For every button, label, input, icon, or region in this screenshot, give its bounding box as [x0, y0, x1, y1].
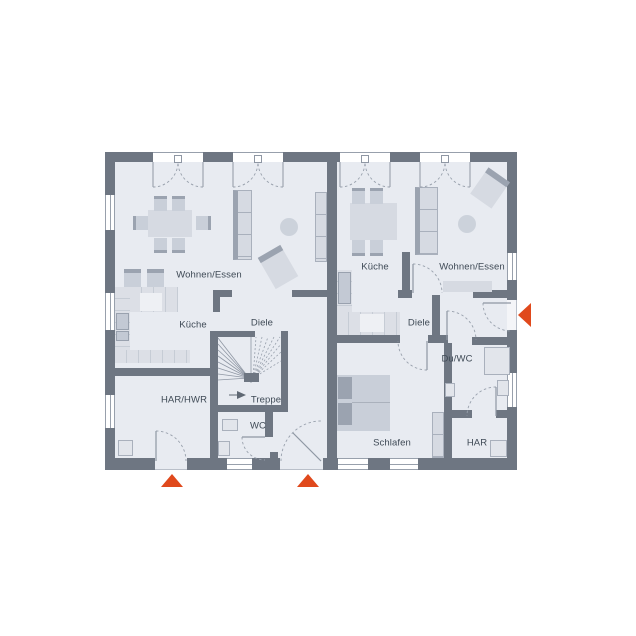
floor-plan-page: Wohnen/Essen Küche Diele Treppe WC HAR/H… — [0, 0, 636, 636]
room-label-wohnen-essen-right: Wohnen/Essen — [439, 262, 504, 273]
room-label-har-hwr: HAR/HWR — [161, 395, 207, 406]
room-label-kueche-right: Küche — [361, 262, 388, 273]
entrance-marker-triangle-left-1 — [161, 474, 183, 487]
room-label-wc: WC — [250, 421, 266, 432]
room-label-diele-right: Diele — [408, 318, 430, 329]
entrance-marker-arrow-right-unit — [518, 303, 531, 327]
stair-newel — [244, 373, 259, 382]
entrance-marker-triangle-left-2 — [297, 474, 319, 487]
room-label-har: HAR — [467, 438, 487, 449]
plan-linework — [105, 152, 517, 470]
room-label-treppe: Treppe — [251, 395, 281, 406]
room-label-schlafen: Schlafen — [373, 438, 411, 449]
room-label-kueche-left: Küche — [179, 320, 206, 331]
floor-plan: Wohnen/Essen Küche Diele Treppe WC HAR/H… — [105, 152, 517, 470]
room-label-wohnen-essen-left: Wohnen/Essen — [176, 270, 241, 281]
room-label-du-wc: Du/WC — [441, 354, 472, 365]
room-label-diele-left: Diele — [251, 318, 273, 329]
stair-direction-arrow — [237, 391, 246, 399]
